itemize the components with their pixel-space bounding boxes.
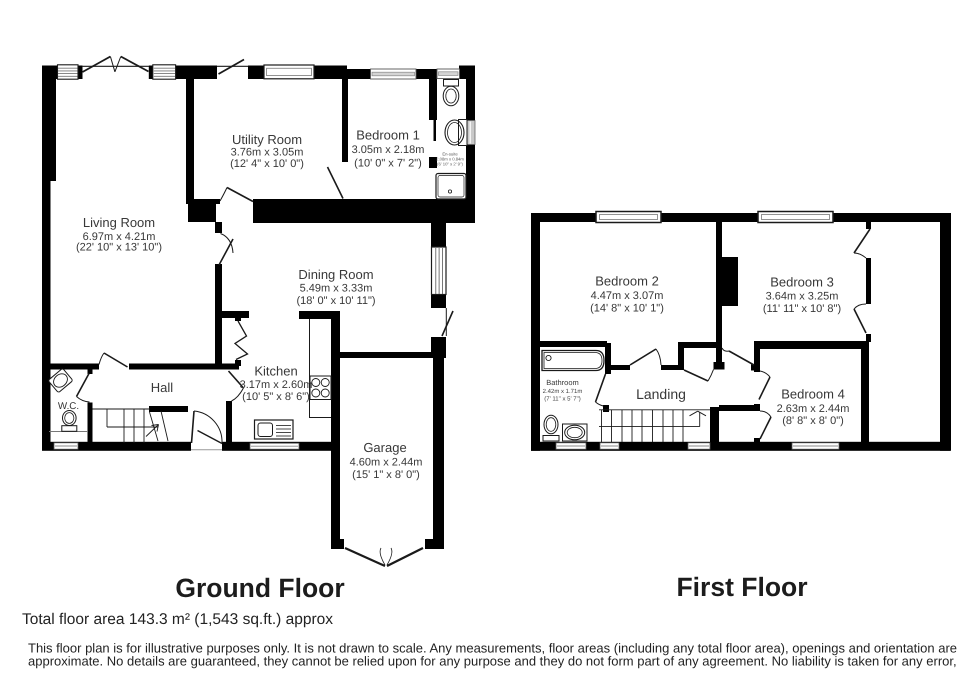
svg-text:Kitchen: Kitchen <box>254 364 297 379</box>
svg-text:W.C.: W.C. <box>58 401 79 412</box>
svg-text:Total floor area 143.3 m² (1,5: Total floor area 143.3 m² (1,543 sq.ft.)… <box>22 611 333 628</box>
svg-text:5.49m x 3.33m: 5.49m x 3.33m <box>300 283 373 295</box>
svg-text:3.76m x 3.05m: 3.76m x 3.05m <box>231 147 304 159</box>
svg-text:Garage: Garage <box>363 440 406 455</box>
svg-text:3.64m x 3.25m: 3.64m x 3.25m <box>766 291 839 303</box>
svg-text:(15' 1" x 8' 0"): (15' 1" x 8' 0") <box>352 469 420 481</box>
svg-text:Landing: Landing <box>636 386 686 402</box>
svg-text:4.47m x 3.07m: 4.47m x 3.07m <box>591 290 664 302</box>
svg-text:Bathroom: Bathroom <box>546 378 579 387</box>
svg-text:(10' 0" x 7' 2"): (10' 0" x 7' 2") <box>354 158 422 170</box>
svg-text:(11' 11" x 10' 8"): (11' 11" x 10' 8") <box>763 303 841 315</box>
svg-text:First Floor: First Floor <box>676 572 807 602</box>
svg-text:3.17m x 2.60m: 3.17m x 2.60m <box>240 379 313 391</box>
svg-text:4.60m x 2.44m: 4.60m x 2.44m <box>350 457 423 469</box>
svg-text:(14' 8" x 10' 1"): (14' 8" x 10' 1") <box>590 303 664 315</box>
svg-text:(22' 10" x 13' 10"): (22' 10" x 13' 10") <box>76 242 162 254</box>
svg-text:(8' 8" x 8' 0"): (8' 8" x 8' 0") <box>782 415 844 427</box>
svg-text:(18' 0" x 10' 11"): (18' 0" x 10' 11") <box>296 295 375 307</box>
svg-text:Ground Floor: Ground Floor <box>175 573 344 603</box>
svg-text:Hall: Hall <box>151 380 174 395</box>
svg-text:(10' 5" x 8' 6"): (10' 5" x 8' 6") <box>242 391 310 403</box>
svg-text:Bedroom 4: Bedroom 4 <box>781 387 845 402</box>
svg-text:Bedroom 1: Bedroom 1 <box>356 128 420 143</box>
svg-text:Utility Room: Utility Room <box>232 132 302 147</box>
svg-text:3.05m x 2.18m: 3.05m x 2.18m <box>352 144 425 156</box>
svg-text:Living Room: Living Room <box>83 215 155 230</box>
svg-text:2.42m x 1.71m: 2.42m x 1.71m <box>543 388 583 395</box>
svg-text:(6' 10" x 2' 9"): (6' 10" x 2' 9") <box>437 162 463 167</box>
svg-text:approximate. No details are gu: approximate. No details are guaranteed, … <box>28 654 957 669</box>
svg-text:(7' 11" x 5' 7"): (7' 11" x 5' 7") <box>544 396 580 403</box>
svg-text:Dining Room: Dining Room <box>298 267 373 282</box>
svg-text:(12' 4" x 10' 0"): (12' 4" x 10' 0") <box>230 158 304 170</box>
svg-text:Bedroom 2: Bedroom 2 <box>595 274 659 289</box>
svg-text:2.63m x 2.44m: 2.63m x 2.44m <box>777 403 850 415</box>
svg-text:Bedroom 3: Bedroom 3 <box>770 275 834 290</box>
